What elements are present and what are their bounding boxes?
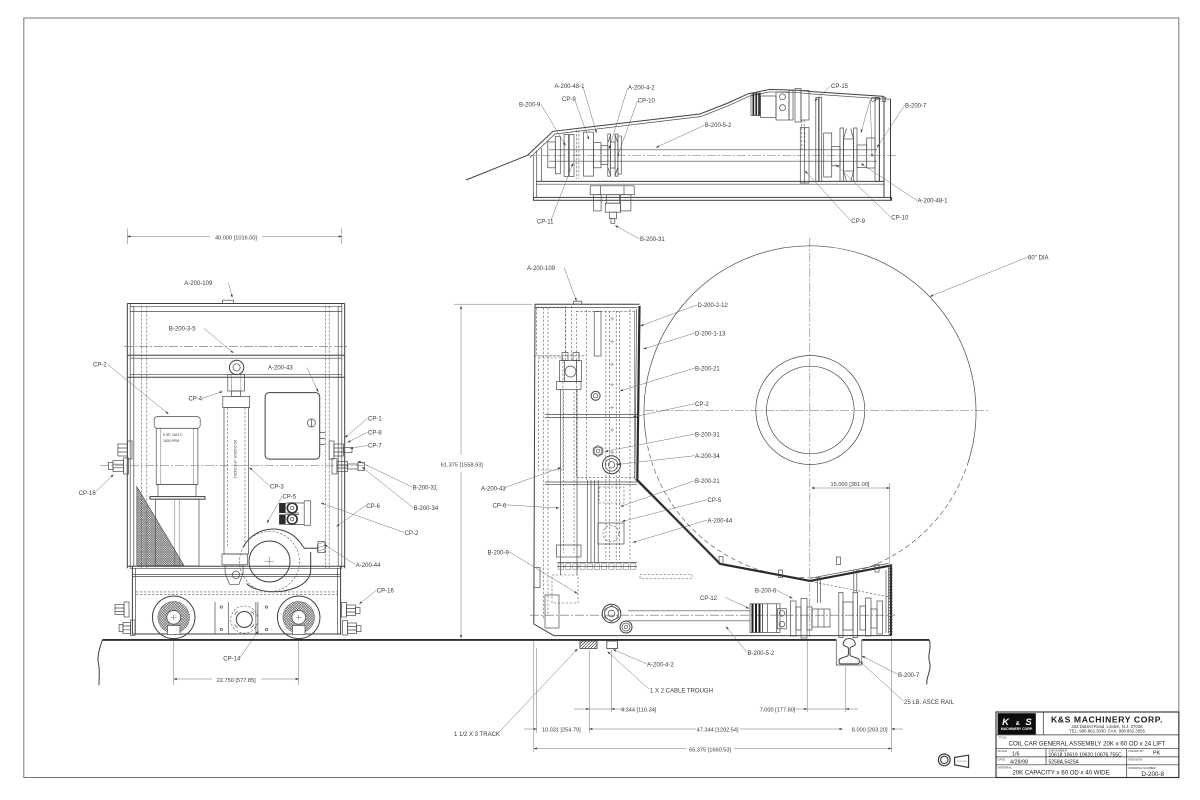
- svg-text:CP-6: CP-6: [366, 504, 380, 510]
- svg-text:B-200-7: B-200-7: [905, 103, 927, 109]
- svg-text:B-200-7: B-200-7: [898, 673, 920, 679]
- svg-text:A-200-48-1: A-200-48-1: [918, 199, 949, 205]
- svg-text:A-200-43: A-200-43: [481, 486, 506, 492]
- svg-text:CP-16: CP-16: [79, 491, 97, 497]
- svg-text:47.344 [1202.54]: 47.344 [1202.54]: [697, 728, 739, 734]
- svg-text:A-200-4-2: A-200-4-2: [628, 86, 655, 92]
- svg-text:COIL CAR GENERAL ASSEMBLY 20K: COIL CAR GENERAL ASSEMBLY 20K x 60 OD x …: [1009, 740, 1166, 747]
- svg-text:7.000 [177.80]: 7.000 [177.80]: [760, 708, 796, 714]
- svg-text:CP-12: CP-12: [700, 596, 718, 602]
- svg-text:A-200-34: A-200-34: [695, 454, 720, 460]
- svg-text:B-200-31: B-200-31: [695, 432, 720, 438]
- svg-text:HD 2NCHU5 .45 B 2NO8 4: HD 2NCHU5 .45 B 2NO8 4: [233, 440, 237, 479]
- svg-text:CP-10: CP-10: [638, 99, 656, 105]
- svg-text:A-200-48-1: A-200-48-1: [555, 84, 586, 90]
- svg-text:CP-4: CP-4: [188, 397, 202, 403]
- svg-text:B-200-31: B-200-31: [640, 237, 665, 243]
- svg-text:A-200-43: A-200-43: [268, 366, 293, 372]
- svg-text:MATERIAL: MATERIAL: [998, 766, 1013, 770]
- svg-text:CP-6: CP-6: [493, 503, 507, 509]
- svg-text:SCALE: SCALE: [998, 749, 1008, 753]
- svg-text:K: K: [1002, 717, 1010, 728]
- svg-text:CP-11: CP-11: [871, 97, 888, 103]
- svg-text:B-200-5-2: B-200-5-2: [705, 123, 732, 129]
- svg-text:D-200-1-13: D-200-1-13: [695, 331, 726, 337]
- svg-text:1 1/2 X 3 TRACK: 1 1/2 X 3 TRACK: [454, 732, 500, 738]
- svg-text:A-200-44: A-200-44: [356, 563, 381, 569]
- svg-text:MACHINERY CORP.: MACHINERY CORP.: [1001, 727, 1033, 731]
- svg-text:CP-3: CP-3: [270, 484, 284, 490]
- svg-text:PK: PK: [1153, 751, 1161, 757]
- svg-text:B-200-6: B-200-6: [755, 589, 777, 595]
- svg-text:CP-8: CP-8: [368, 430, 382, 436]
- svg-text:B-200-21: B-200-21: [695, 479, 720, 485]
- svg-text:CP-15: CP-15: [831, 84, 849, 90]
- svg-text:&: &: [1016, 721, 1020, 727]
- svg-text:CP-2: CP-2: [405, 531, 419, 537]
- svg-text:CP-16: CP-16: [377, 588, 395, 594]
- svg-text:B-200-9: B-200-9: [519, 103, 541, 109]
- svg-text:A-200-44: A-200-44: [708, 518, 733, 524]
- svg-text:REVISION: REVISION: [1129, 757, 1143, 761]
- svg-text:5 HP, 184TC,: 5 HP, 184TC,: [163, 433, 183, 437]
- svg-text:61.375 [1558.93]: 61.375 [1558.93]: [441, 463, 483, 469]
- svg-text:CP-2: CP-2: [93, 363, 107, 369]
- svg-text:10.031 [254.79]: 10.031 [254.79]: [542, 728, 581, 734]
- svg-text:65.375 [1660.53]: 65.375 [1660.53]: [689, 747, 731, 753]
- svg-text:A-200-109: A-200-109: [527, 266, 556, 272]
- svg-text:B-200-5-2: B-200-5-2: [748, 651, 775, 657]
- svg-text:20K CAPACITY x 60 OD x 40 WIDE: 20K CAPACITY x 60 OD x 40 WIDE: [1012, 770, 1109, 777]
- svg-text:4/28/98: 4/28/98: [1010, 760, 1028, 766]
- svg-text:25 LB. ASCE RAIL: 25 LB. ASCE RAIL: [904, 700, 955, 706]
- svg-text:60" DIA: 60" DIA: [1028, 255, 1048, 261]
- svg-text:1800 RPM: 1800 RPM: [163, 439, 179, 443]
- svg-text:40.000 [1016.00]: 40.000 [1016.00]: [215, 235, 257, 241]
- svg-text:8.000 [203.20]: 8.000 [203.20]: [852, 728, 888, 734]
- svg-text:D-200-8: D-200-8: [1141, 771, 1164, 778]
- svg-text:CP-14: CP-14: [223, 656, 241, 662]
- svg-text:CP-11: CP-11: [537, 219, 554, 225]
- svg-text:CP-7: CP-7: [368, 444, 382, 450]
- svg-text:CP-1: CP-1: [368, 417, 382, 423]
- svg-text:K&S MACHINERY CORP.: K&S MACHINERY CORP.: [1051, 714, 1163, 724]
- svg-text:A-200-4-2: A-200-4-2: [647, 662, 674, 668]
- svg-text:D-200-2-12: D-200-2-12: [698, 303, 729, 309]
- svg-text:DRAWN BY: DRAWN BY: [1129, 749, 1145, 753]
- svg-text:DATE: DATE: [998, 757, 1006, 761]
- svg-text:B-200-31: B-200-31: [413, 486, 438, 492]
- svg-text:5258A,5425A: 5258A,5425A: [1049, 760, 1080, 766]
- svg-text:B-200-21: B-200-21: [695, 366, 720, 372]
- svg-text:CP-10: CP-10: [891, 215, 909, 221]
- svg-text:TEL: 908.862.3030 FAX: 908.86: TEL: 908.862.3030 FAX: 908.862.3055: [1069, 729, 1145, 734]
- svg-text:15.000 [381.00]: 15.000 [381.00]: [831, 482, 870, 488]
- svg-text:TITLE: TITLE: [999, 736, 1007, 740]
- svg-text:S: S: [1025, 717, 1032, 728]
- svg-text:CP-5: CP-5: [282, 495, 296, 501]
- svg-text:1 X 2 CABLE TROUGH: 1 X 2 CABLE TROUGH: [650, 688, 713, 694]
- svg-text:1/6: 1/6: [1012, 752, 1020, 758]
- svg-text:10618,10619,10620,10676,755C: 10618,10619,10620,10676,755C: [1049, 752, 1123, 758]
- svg-text:CP-9: CP-9: [562, 97, 576, 103]
- svg-text:CP-9: CP-9: [851, 219, 865, 225]
- svg-text:A-200-109: A-200-109: [184, 281, 213, 287]
- svg-text:CP-5: CP-5: [708, 498, 722, 504]
- svg-text:B-200-9: B-200-9: [488, 550, 510, 556]
- svg-text:22.750 [577.85]: 22.750 [577.85]: [217, 678, 256, 684]
- svg-text:4.344 [110.34]: 4.344 [110.34]: [621, 708, 657, 714]
- svg-text:CP-2: CP-2: [695, 402, 709, 408]
- svg-text:B-200-3-5: B-200-3-5: [169, 327, 196, 333]
- svg-text:DRAWING NUMBER: DRAWING NUMBER: [1129, 766, 1156, 770]
- svg-text:B-200-34: B-200-34: [414, 506, 439, 512]
